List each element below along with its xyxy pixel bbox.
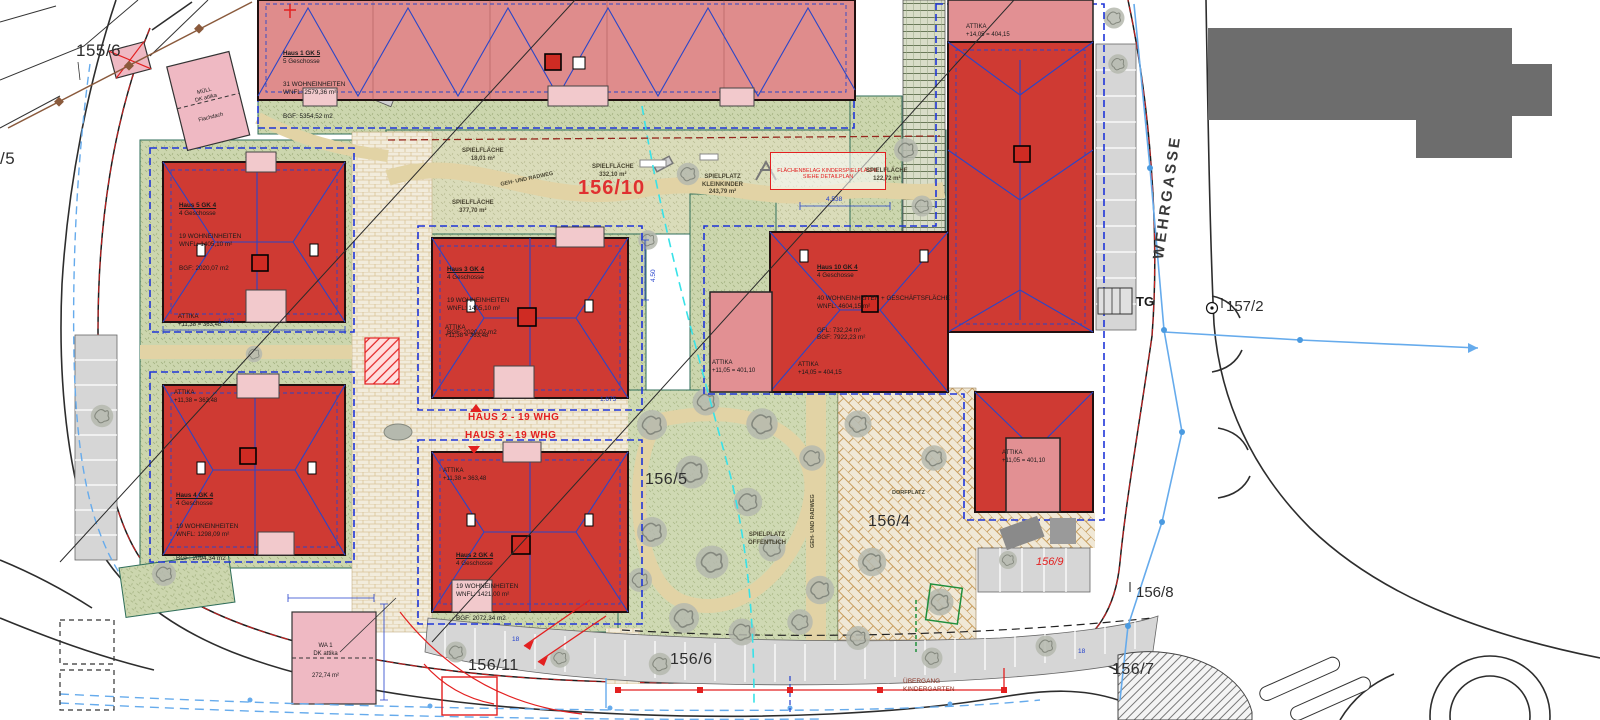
attika-label-2: ATTIKA+11,38 = 363,48	[174, 390, 217, 405]
haus5-info: Haus 5 GK 44 Geschosse 19 WOHNEINHEITENW…	[179, 186, 309, 280]
parcel-label-155-6: 155/6	[76, 40, 121, 61]
haus2-whg-label: HAUS 2 - 19 WHG	[468, 412, 559, 425]
attika-label-6: ATTIKA+14,05 = 404,15	[798, 362, 842, 377]
parcel-label-156-9: 156/9	[1036, 556, 1064, 570]
parcel-label-156-4: 156/4	[868, 512, 911, 532]
spielflaeche-332-label: SPIELFLÄCHE332,10 m²	[592, 164, 634, 179]
tg-ramp	[1098, 288, 1132, 314]
haus2-info: Haus 2 GK 44 Geschosse 19 WOHNEINHEITENW…	[456, 536, 586, 630]
haus4-info: Haus 4 GK 44 Geschosse 19 WOHNEINHEITENW…	[176, 476, 306, 570]
geh-radweg-label-2: GEH- UND RADWEG	[810, 494, 817, 548]
parcel-label-156-10: 156/10	[578, 176, 645, 201]
spielflaeche-18-label: SPIELFLÄCHE18,01 m²	[462, 148, 504, 163]
survey-symbols	[1130, 298, 1222, 592]
dim-label-3: 1.675	[600, 396, 616, 404]
parcel-label-157-2: 157/2	[1226, 298, 1264, 317]
attika-label-3: ATTIKA+11,38 = 363,48	[445, 325, 488, 340]
spielplatz-kleinkinder-label: SPIELPLATZKLEINKINDER243,79 m²	[702, 174, 743, 197]
spielflaeche-377-label: SPIELFLÄCHE377,70 m²	[452, 200, 494, 215]
dim-label-5: 18	[512, 636, 519, 644]
haus10-info: Haus 10 GK 44 Geschosse 40 WOHNEINHEITEN…	[817, 248, 987, 350]
parcel-label-156-8: 156/8	[1136, 584, 1174, 603]
neighbor-building	[1208, 28, 1552, 158]
site-plan-canvas: 155/6 /5 156/10 156/5 156/4 156/6 156/11…	[0, 0, 1600, 720]
parcel-label-156-7: 156/7	[1112, 660, 1155, 680]
attika-label-4: ATTIKA+11,38 = 363,48	[443, 468, 486, 483]
uebergang-kindergarten-label: ÜBERGANGKINDERGARTEN	[903, 662, 955, 703]
parcel-label-5: /5	[0, 148, 15, 169]
dim-label-1: 1.487	[218, 318, 234, 326]
parcel-label-156-6: 156/6	[670, 650, 713, 670]
haus1-info: Haus 1 GK 55 Geschosse 31 WOHNEINHEITENW…	[283, 34, 413, 128]
spielflaeche-122-label: SPIELFLÄCHE122,72 m²	[866, 168, 908, 183]
haus3-whg-label: HAUS 3 - 19 WHG	[465, 430, 556, 443]
parcel-label-156-11: 156/11	[468, 656, 519, 676]
attika-label-1: ATTIKA+11,38 = 363,48	[178, 314, 221, 329]
attika-label-7: ATTIKA+14,05 = 404,15	[966, 24, 1010, 39]
dorfplatz-label: DORFPLATZ	[892, 490, 925, 497]
attika-label-5: ATTIKA+11,05 = 401,10	[712, 360, 755, 375]
dim-label-6: 18	[1078, 648, 1085, 656]
spielplatz-oeffentlich-label: SPIELPLATZÖFFENTLICH	[748, 532, 786, 547]
dim-label-2: 4.538	[826, 196, 842, 204]
wa1-info: WA 1DK attika 272,74 m²	[312, 628, 339, 688]
tg-label: TG	[1136, 294, 1154, 310]
site-plan-drawing	[0, 0, 1600, 720]
attika-label-8: ATTIKA+11,05 = 401,10	[1002, 450, 1045, 465]
parcel-label-156-5: 156/5	[645, 470, 688, 490]
dim-label-4: 4.50	[650, 269, 658, 282]
